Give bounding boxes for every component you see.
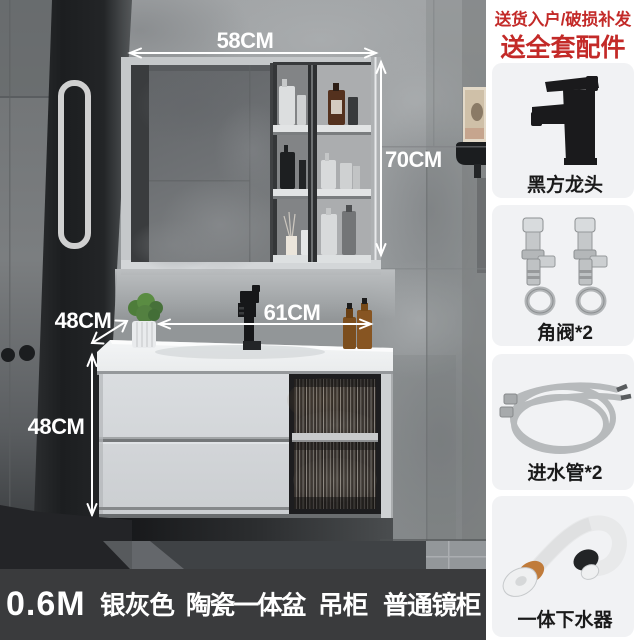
svg-text:一体下水器: 一体下水器: [517, 608, 613, 631]
svg-text:吊柜: 吊柜: [318, 592, 368, 620]
svg-text:48CM: 48CM: [28, 414, 85, 439]
svg-text:进水管*2: 进水管*2: [528, 461, 603, 484]
svg-text:48CM: 48CM: [55, 308, 112, 333]
svg-text:送全套配件: 送全套配件: [500, 33, 625, 62]
svg-text:送货入户/破损补发: 送货入户/破损补发: [495, 9, 632, 29]
svg-text:陶瓷一体盆: 陶瓷一体盆: [186, 591, 307, 620]
svg-text:黑方龙头: 黑方龙头: [527, 173, 603, 196]
svg-text:角阀*2: 角阀*2: [537, 321, 593, 344]
svg-text:61CM: 61CM: [264, 300, 321, 325]
svg-text:70CM: 70CM: [385, 147, 442, 172]
svg-text:普通镜柜: 普通镜柜: [383, 591, 481, 620]
svg-text:58CM: 58CM: [217, 28, 274, 53]
svg-text:0.6M: 0.6M: [6, 585, 86, 623]
svg-text:银灰色: 银灰色: [100, 591, 175, 620]
